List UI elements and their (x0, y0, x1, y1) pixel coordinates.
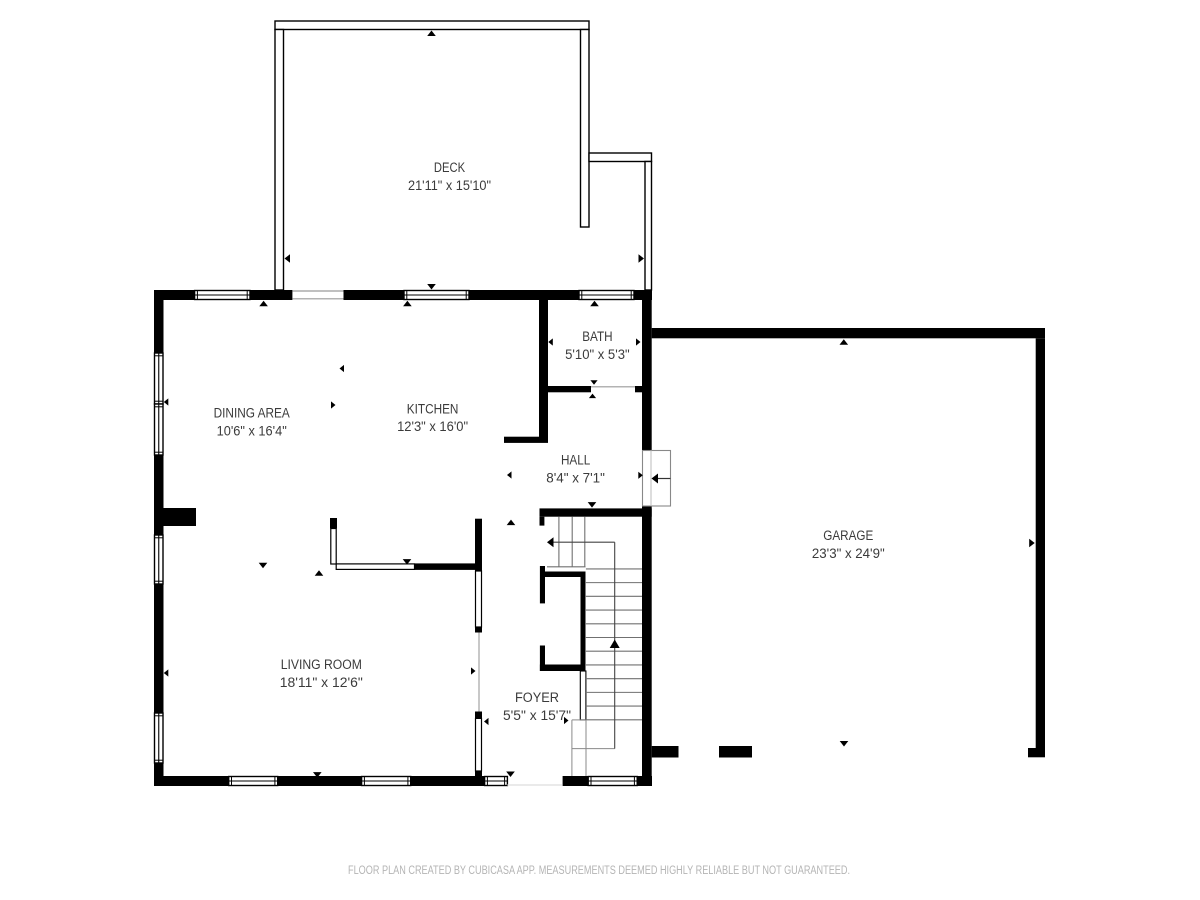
svg-text:FLOOR PLAN CREATED BY CUBICASA: FLOOR PLAN CREATED BY CUBICASA APP. MEAS… (348, 865, 850, 877)
svg-text:5'10" x 5'3": 5'10" x 5'3" (565, 347, 630, 363)
svg-text:12'3" x 16'0": 12'3" x 16'0" (397, 419, 468, 435)
svg-text:BATH: BATH (582, 329, 612, 345)
svg-text:LIVING ROOM: LIVING ROOM (281, 657, 362, 673)
svg-text:HALL: HALL (561, 453, 590, 469)
svg-text:KITCHEN: KITCHEN (407, 401, 459, 417)
svg-text:GARAGE: GARAGE (823, 528, 873, 544)
svg-text:10'6" x 16'4": 10'6" x 16'4" (217, 423, 287, 439)
svg-text:21'11" x 15'10": 21'11" x 15'10" (408, 178, 491, 194)
svg-text:DECK: DECK (434, 160, 466, 176)
svg-text:23'3" x 24'9": 23'3" x 24'9" (812, 546, 885, 562)
svg-text:DINING AREA: DINING AREA (214, 405, 291, 421)
svg-text:8'4" x 7'1": 8'4" x 7'1" (546, 470, 605, 486)
svg-text:5'5" x 15'7": 5'5" x 15'7" (503, 708, 571, 724)
svg-text:18'11" x 12'6": 18'11" x 12'6" (280, 675, 363, 691)
svg-text:FOYER: FOYER (515, 690, 559, 706)
